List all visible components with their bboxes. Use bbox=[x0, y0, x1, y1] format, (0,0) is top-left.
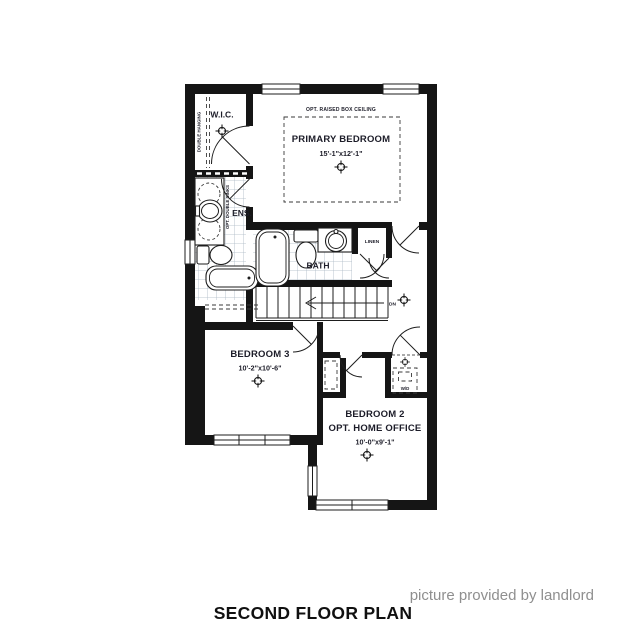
bedroom3-label: BEDROOM 3 bbox=[230, 349, 289, 360]
wall-bedroom3-east bbox=[317, 322, 323, 443]
window-top-2 bbox=[383, 84, 419, 94]
photo-credit: picture provided by landlord bbox=[410, 587, 594, 604]
wall-bedroom3-north bbox=[195, 322, 293, 330]
window-bedroom2-left bbox=[308, 466, 317, 496]
window-bedroom2-bottom bbox=[316, 500, 388, 510]
light-fixture-icon bbox=[398, 294, 411, 307]
light-fixture-icon bbox=[400, 357, 410, 367]
stairs-down-label: DN bbox=[389, 302, 396, 308]
bathtub-icon bbox=[206, 266, 258, 290]
double-hanging-label: DOUBLE HANGING bbox=[197, 111, 202, 152]
bedroom2-label: BEDROOM 2 bbox=[345, 409, 404, 420]
closet-details: W/D bbox=[325, 355, 420, 393]
window-left bbox=[185, 240, 195, 264]
raised-ceiling-note: OPT. RAISED BOX CEILING bbox=[306, 107, 376, 113]
wall-laundry-west bbox=[385, 352, 391, 398]
wall-primary-west-b bbox=[246, 166, 253, 179]
linen-label: LINEN bbox=[365, 239, 380, 245]
bedroom3-dims: 10'-2"x10'-6" bbox=[238, 364, 281, 373]
floor-plan-drawing: DN bbox=[0, 0, 640, 634]
wall-primary-west-a bbox=[246, 94, 253, 126]
page-title: SECOND FLOOR PLAN bbox=[214, 603, 413, 623]
wall-post-primary-door bbox=[419, 222, 427, 230]
laundry-door bbox=[392, 327, 420, 355]
window-bedroom3 bbox=[214, 435, 290, 445]
wic-double-hanging: DOUBLE HANGING bbox=[197, 97, 210, 168]
light-fixture-icon bbox=[361, 449, 374, 462]
floor-plan-page: DN bbox=[0, 0, 640, 634]
bath-label: BATH bbox=[307, 261, 330, 271]
light-fixture-icon bbox=[252, 375, 265, 388]
stairs: DN bbox=[256, 287, 396, 321]
primary-door bbox=[392, 226, 419, 253]
opt-double-sinks-label: OPT. DOUBLE SINKS bbox=[225, 185, 230, 229]
wall-linen-right bbox=[386, 222, 392, 258]
wall-right bbox=[427, 84, 437, 510]
wall-hall-south-c bbox=[420, 352, 427, 358]
wic-label: W.I.C. bbox=[210, 110, 233, 120]
toilet-icon bbox=[197, 246, 232, 265]
wall-hall-south-a bbox=[317, 352, 340, 358]
wall-left-upper bbox=[185, 84, 195, 312]
bathtub-icon bbox=[256, 229, 289, 286]
window-top-1 bbox=[262, 84, 300, 94]
wall-closet-south bbox=[317, 392, 346, 398]
closet-shelf bbox=[325, 361, 337, 389]
light-fixture-icon bbox=[335, 161, 348, 174]
bedroom2-sublabel: OPT. HOME OFFICE bbox=[329, 423, 422, 434]
light-fixture-icon bbox=[216, 125, 229, 138]
sink-icon bbox=[318, 228, 352, 252]
wic-door bbox=[212, 126, 250, 164]
primary-bedroom-dims: 15'-1"x12'-1" bbox=[319, 149, 362, 158]
bedroom3-door bbox=[293, 326, 319, 352]
ensuite-label: ENS. bbox=[232, 208, 252, 218]
faucet-icon bbox=[196, 206, 200, 216]
primary-bedroom-label: PRIMARY BEDROOM bbox=[292, 134, 391, 145]
washer-dryer-label: W/D bbox=[401, 386, 410, 391]
bedroom2-dims: 10'-0"x9'-1" bbox=[355, 438, 394, 447]
washer-dryer: W/D bbox=[393, 368, 417, 393]
raised-box-ceiling-outline bbox=[284, 117, 400, 202]
